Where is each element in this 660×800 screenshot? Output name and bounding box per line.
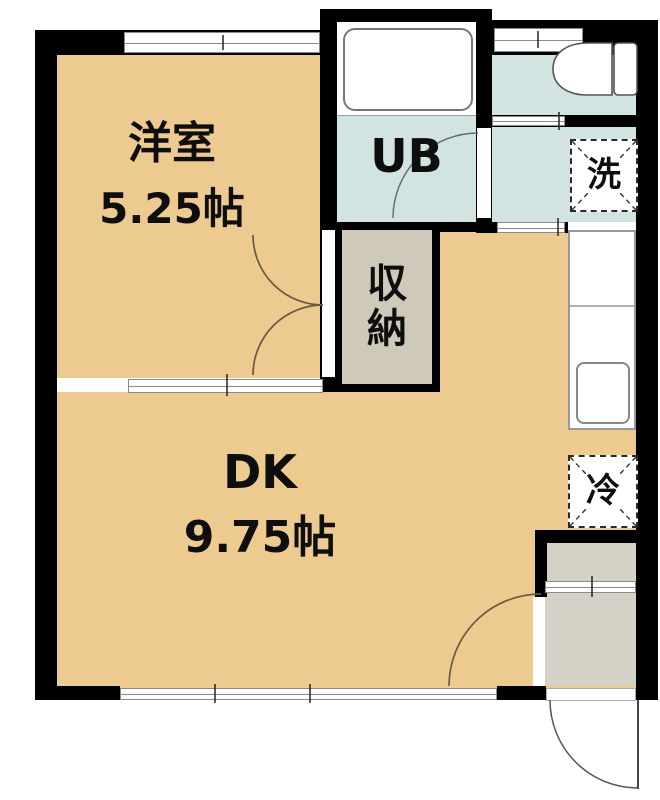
wall-bottom-mid	[497, 686, 546, 700]
wall-right-outer	[636, 20, 658, 700]
window-toilet-top	[494, 28, 583, 52]
refrigerator-label: 冷	[568, 455, 638, 528]
window-rail-line	[493, 121, 564, 122]
dk-label-block: DK 9.75帖	[150, 448, 370, 561]
sliding-door-western-dk	[128, 379, 323, 393]
wall-unit-bath-top	[322, 9, 492, 22]
storage-label: 収納	[365, 262, 409, 352]
western-room-label-block: 洋室 5.25帖	[62, 120, 282, 231]
window-rail-line	[121, 694, 496, 695]
front-door-arc	[550, 700, 638, 788]
bathtub-icon	[343, 28, 473, 111]
wall-entry-top	[535, 530, 658, 543]
storage-label-box: 収納	[334, 222, 440, 392]
washer-label: 洗	[570, 139, 638, 212]
toilet-room-floor	[492, 55, 636, 115]
window-rail-line	[546, 587, 635, 588]
western-room-size: 5.25帖	[62, 186, 282, 231]
western-room-name: 洋室	[62, 120, 282, 168]
wall-unit-bath-left	[320, 9, 337, 222]
entry-threshold	[546, 688, 636, 701]
dk-size: 9.75帖	[150, 514, 370, 562]
dk-name: DK	[150, 448, 370, 498]
sliding-door-toilet-washroom	[492, 116, 565, 126]
window-rail-line	[129, 386, 322, 387]
window-rail-line	[498, 228, 564, 229]
sliding-door-washroom-dk	[497, 222, 565, 233]
entry-hall-door-opening	[533, 597, 545, 686]
unit-bath-door-opening	[477, 128, 491, 218]
kitchen-sink-icon	[576, 362, 630, 424]
wall-bottom-left	[35, 686, 120, 700]
floor-plan: 洋室 5.25帖 DK 9.75帖 UB 収納 洗 冷	[0, 0, 660, 800]
unit-bath-label: UB	[337, 132, 476, 182]
window-dk-bottom	[120, 688, 497, 700]
entry-genkan-floor	[545, 543, 636, 686]
wall-left-outer	[35, 30, 57, 700]
entry-step-divider	[545, 581, 636, 593]
window-rail-line	[125, 43, 319, 44]
window-western-top	[124, 32, 320, 53]
window-rail-line	[495, 40, 582, 41]
